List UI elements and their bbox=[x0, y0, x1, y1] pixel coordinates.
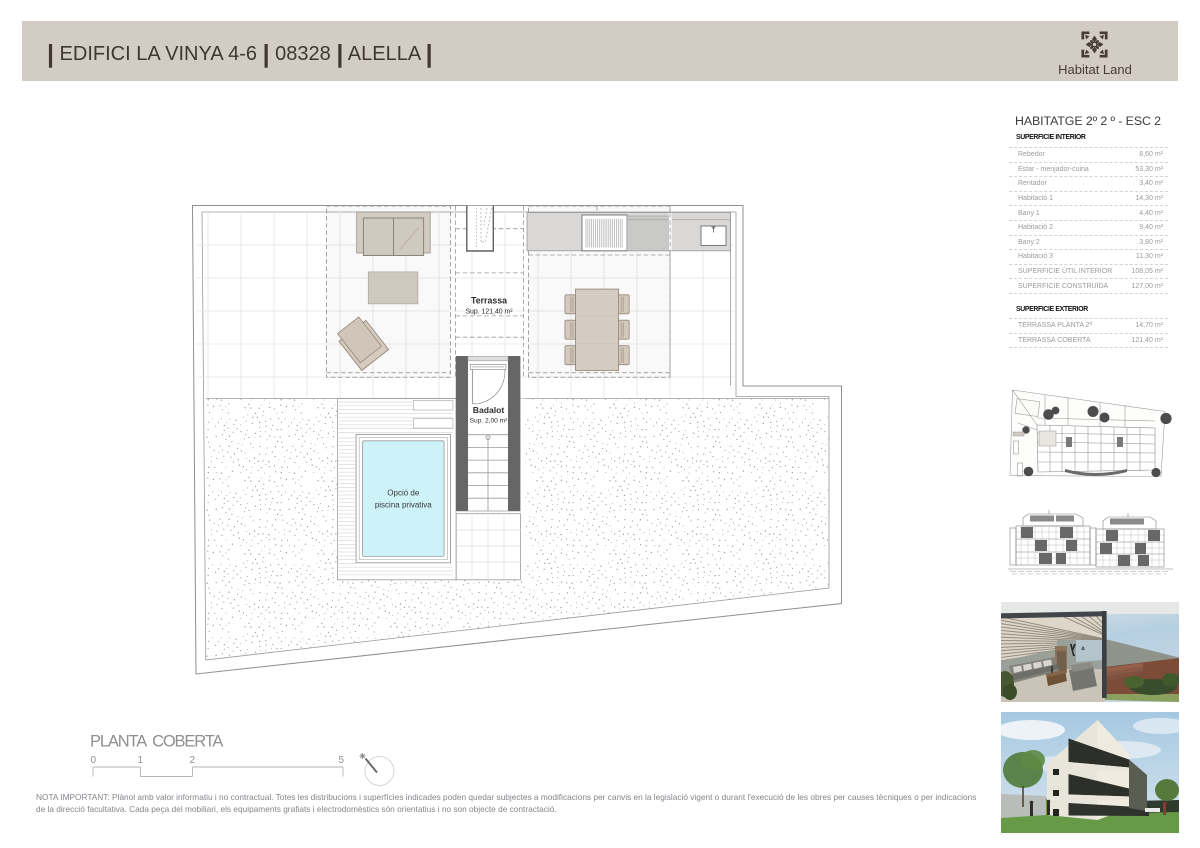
svg-text:Badalot: Badalot bbox=[473, 405, 505, 415]
svg-text:5: 5 bbox=[339, 755, 345, 766]
svg-text:PLANTA COBERTA: PLANTA COBERTA bbox=[90, 733, 223, 751]
svg-text:Sup. 121,40 m²: Sup. 121,40 m² bbox=[465, 309, 513, 316]
svg-text:Opció de: Opció de bbox=[387, 489, 420, 498]
svg-text:0: 0 bbox=[91, 755, 97, 766]
svg-text:Sup. 2,00 m²: Sup. 2,00 m² bbox=[470, 418, 509, 425]
svg-text:1: 1 bbox=[138, 755, 144, 766]
svg-text:2: 2 bbox=[190, 755, 196, 766]
svg-text:piscina privativa: piscina privativa bbox=[375, 501, 432, 510]
svg-text:Terrassa: Terrassa bbox=[471, 296, 507, 306]
